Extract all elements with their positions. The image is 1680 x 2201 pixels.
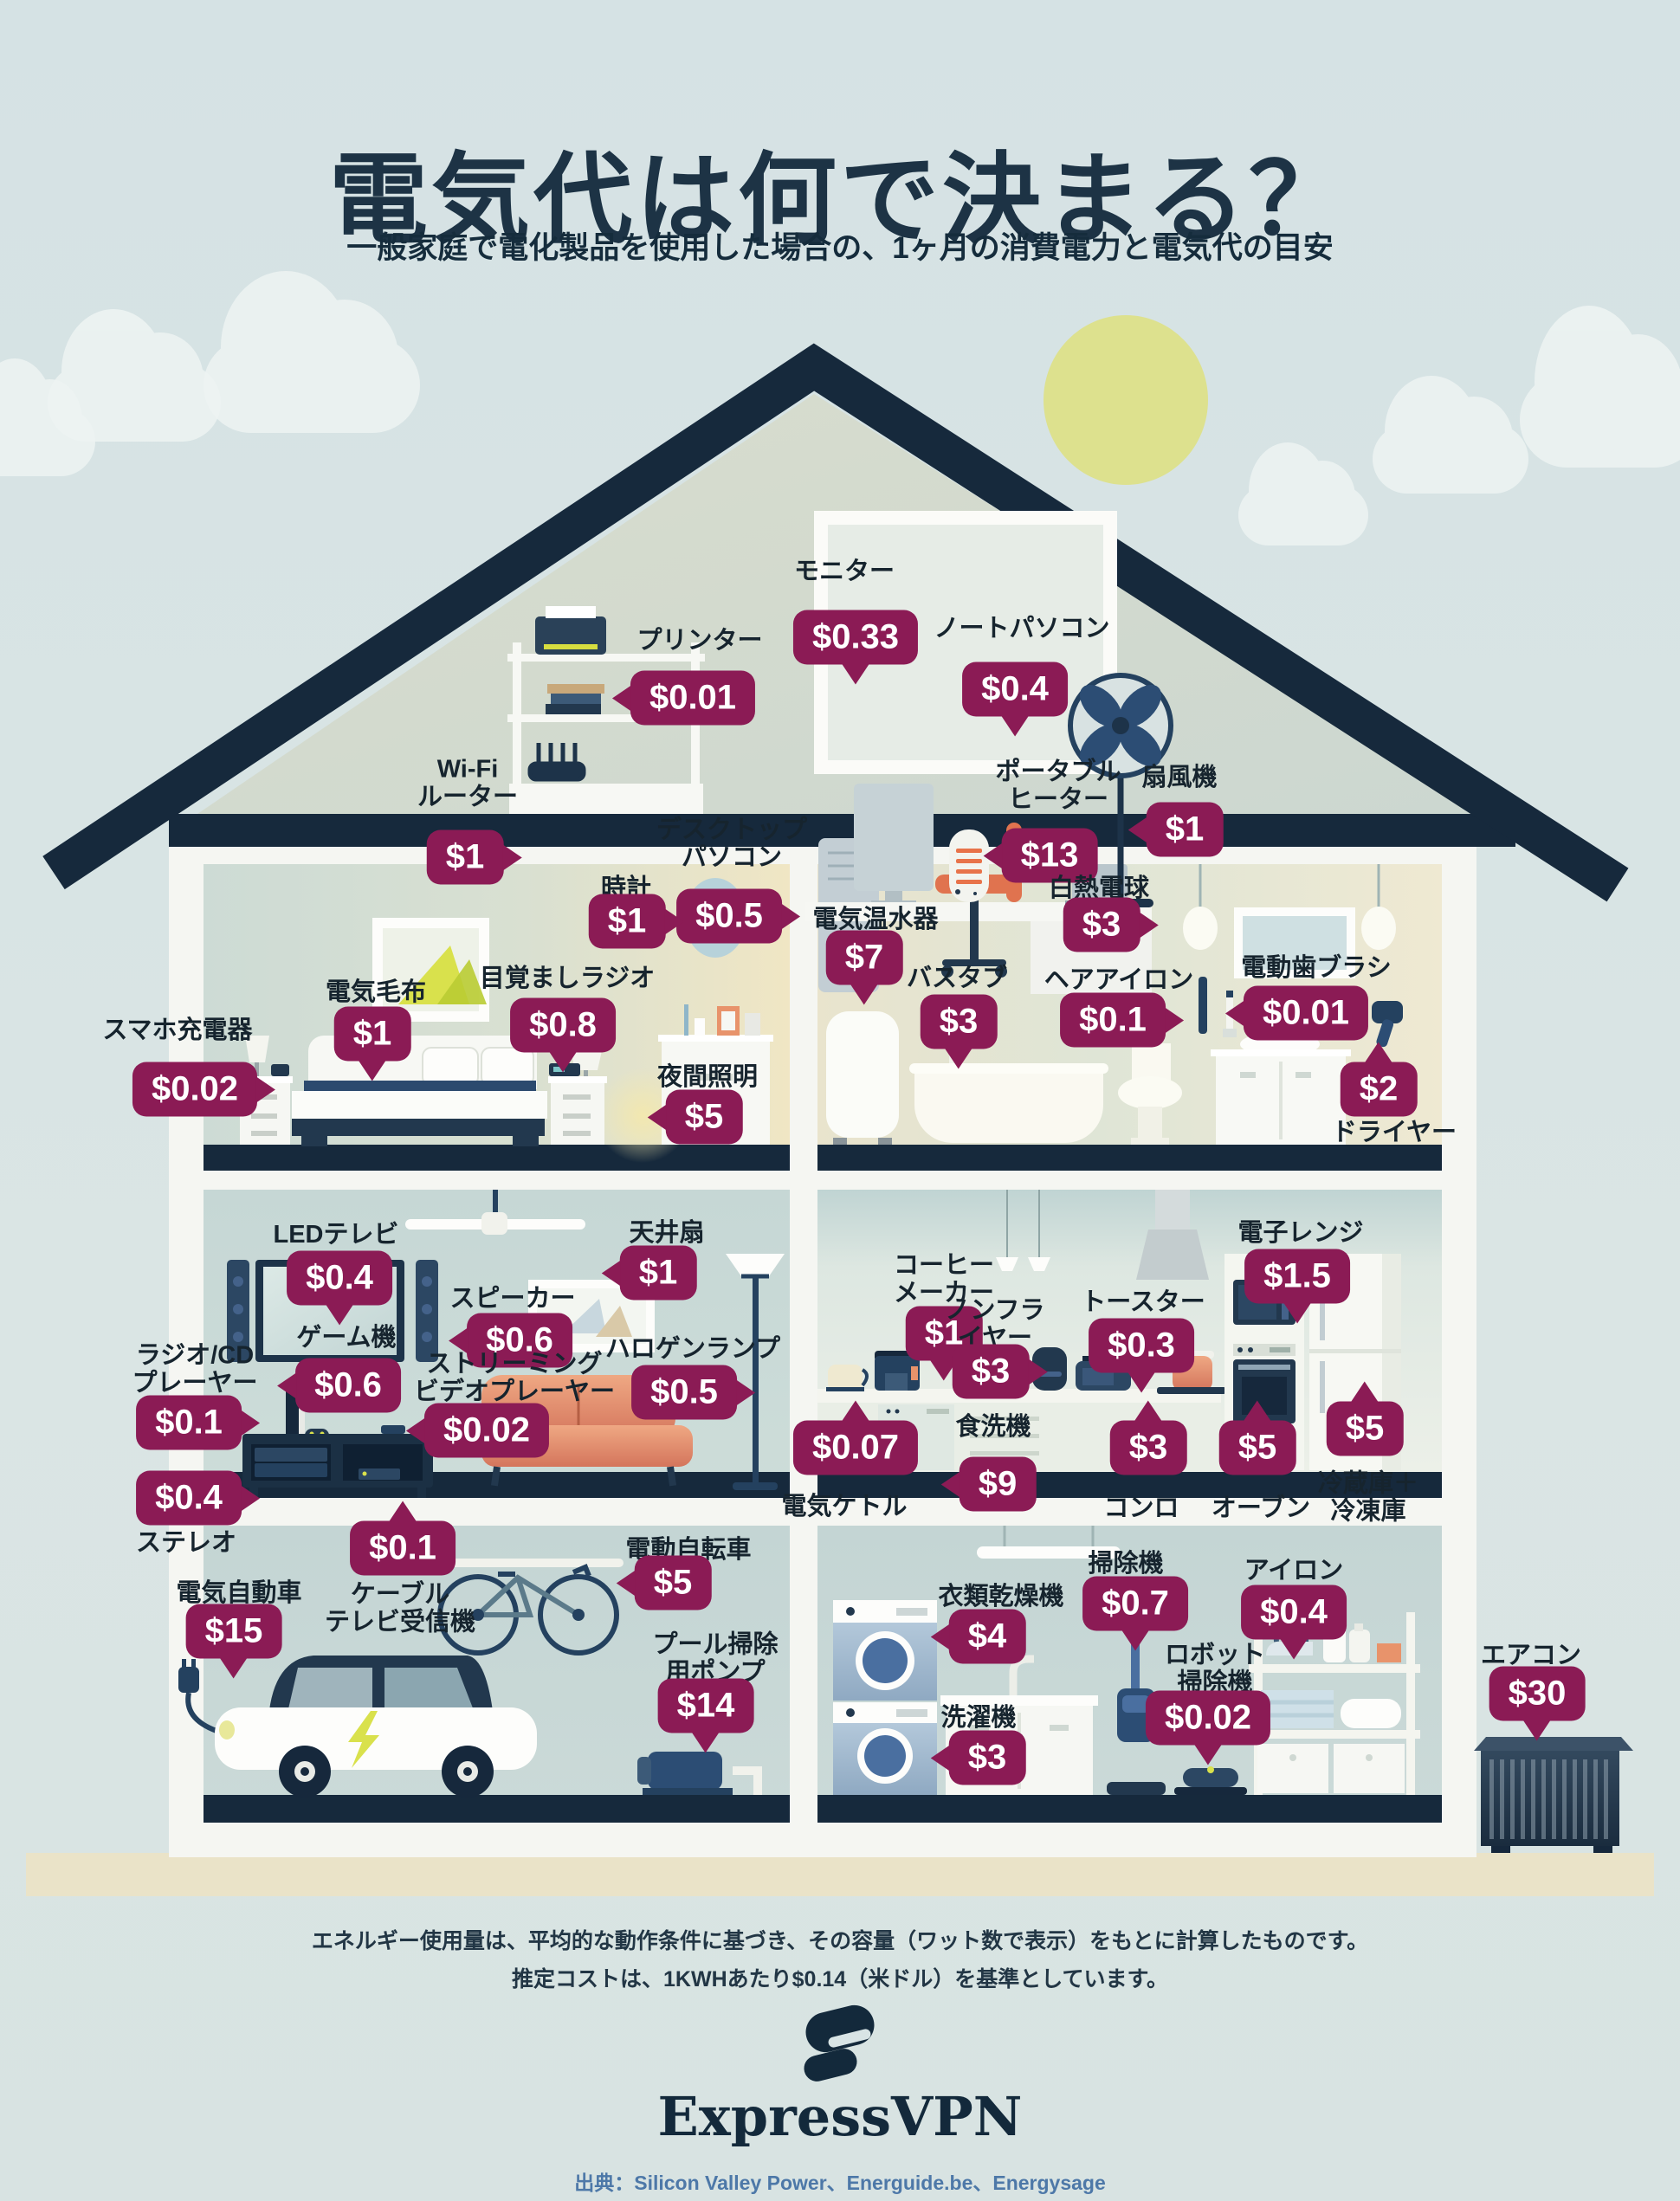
callout-badge-electric-car: $15: [186, 1604, 282, 1659]
callout-badge-electric-bike: $5: [635, 1556, 712, 1610]
callout-badge-electric-kettle: $0.07: [793, 1421, 918, 1475]
callout-label-water-heater: 電気温水器: [812, 906, 938, 933]
callout-badge-radio-cd-player: $0.1: [136, 1396, 242, 1450]
callout-label-phone-charger: スマホ充電器: [102, 1017, 252, 1044]
callout-label-portable-heater: ポータブル ヒーター: [995, 758, 1121, 815]
callout-label-air-conditioner: エアコン: [1481, 1642, 1581, 1669]
callout-badge-water-heater: $7: [826, 931, 903, 985]
callout-label-iron: アイロン: [1244, 1557, 1344, 1585]
callout-label-microwave: 電子レンジ: [1237, 1219, 1363, 1247]
callout-label-hair-dryer: ドライヤー: [1332, 1119, 1457, 1146]
callout-badge-air-conditioner: $30: [1489, 1667, 1586, 1721]
callout-label-ceiling-fan: 天井扇: [629, 1219, 704, 1247]
callout-badge-ceiling-fan: $1: [620, 1246, 697, 1301]
callout-badge-hair-iron: $0.1: [1060, 993, 1166, 1048]
callout-label-hair-iron: ヘアアイロン: [1044, 966, 1194, 994]
callout-badge-cable-tv-box: $0.1: [350, 1521, 456, 1576]
callout-label-cable-tv-box: ケーブル テレビ受信機: [325, 1581, 475, 1637]
callout-badge-bathtub: $3: [921, 995, 998, 1049]
callout-label-printer: プリンター: [636, 627, 762, 655]
callout-badge-electric-toothbrush: $0.01: [1244, 986, 1368, 1041]
callout-badge-oven: $5: [1219, 1421, 1296, 1475]
callout-label-streaming-player: ストリーミング ビデオプレーヤー: [414, 1351, 615, 1407]
callout-label-clothes-dryer: 衣類乾燥機: [938, 1583, 1063, 1610]
callout-badge-pool-pump: $14: [658, 1679, 754, 1733]
callout-label-dishwasher: 食洗機: [955, 1413, 1031, 1441]
callout-badge-toaster: $0.3: [1089, 1319, 1194, 1373]
callout-label-night-light: 夜間照明: [657, 1063, 758, 1091]
callout-label-desktop-pc: デスクトップ パソコン: [656, 816, 807, 873]
callout-badge-alarm-radio: $0.8: [510, 998, 616, 1053]
callout-badge-led-tv: $0.4: [287, 1251, 392, 1306]
callout-label-halogen-lamp: ハロゲンランプ: [605, 1335, 780, 1363]
callout-badge-dishwasher: $9: [960, 1457, 1037, 1512]
callout-label-laptop: ノートパソコン: [934, 615, 1109, 642]
callout-badge-game-console: $0.6: [295, 1359, 401, 1413]
callout-badge-phone-charger: $0.02: [132, 1062, 257, 1117]
callout-badge-laptop: $0.4: [962, 662, 1068, 717]
callout-badge-night-light: $5: [666, 1090, 743, 1145]
callout-label-speakers: スピーカー: [449, 1285, 575, 1313]
callout-label-vacuum: 掃除機: [1088, 1550, 1163, 1578]
callout-label-electric-toothbrush: 電動歯ブラシ: [1241, 954, 1391, 982]
callout-label-electric-fan: 扇風機: [1141, 764, 1217, 791]
callout-badge-clothes-dryer: $4: [949, 1610, 1026, 1664]
callout-label-electric-blanket: 電気毛布: [326, 978, 426, 1006]
callout-badge-vacuum: $0.7: [1082, 1577, 1188, 1631]
callout-badge-air-fryer: $3: [953, 1345, 1030, 1399]
callout-layer: モニター$0.33プリンター$0.01ノートパソコン$0.4Wi-Fi ルーター…: [0, 0, 1680, 2201]
callout-label-electric-car: 電気自動車: [176, 1579, 301, 1607]
callout-badge-halogen-lamp: $0.5: [631, 1365, 737, 1420]
callout-badge-hair-dryer: $2: [1341, 1062, 1418, 1117]
callout-label-led-tv: LEDテレビ: [273, 1221, 398, 1249]
callout-badge-wifi-router: $1: [427, 830, 504, 885]
callout-badge-iron: $0.4: [1241, 1585, 1347, 1640]
callout-label-fridge-freezer: 冷蔵庫＋ 冷凍庫: [1318, 1470, 1418, 1526]
callout-badge-fridge-freezer: $5: [1327, 1402, 1404, 1456]
callout-label-stove: コンロ: [1103, 1494, 1179, 1522]
callout-label-game-console: ゲーム機: [296, 1324, 396, 1352]
callout-label-radio-cd-player: ラジオ/CD プレーヤー: [132, 1342, 257, 1398]
callout-label-robot-vacuum: ロボット 掃除機: [1165, 1642, 1265, 1698]
callout-label-toaster: トースター: [1081, 1288, 1205, 1316]
callout-label-monitor: モニター: [794, 558, 895, 585]
callout-badge-monitor: $0.33: [793, 610, 918, 665]
callout-label-wifi-router: Wi-Fi ルーター: [417, 756, 518, 812]
callout-label-electric-kettle: 電気ケトル: [781, 1493, 907, 1520]
callout-badge-electric-blanket: $1: [334, 1007, 411, 1062]
callout-badge-washing-machine: $3: [949, 1731, 1026, 1785]
infographic-canvas: 電気代は何で決まる？ 一般家庭で電化製品を使用した場合の、1ヶ月の消費電力と電気…: [0, 0, 1680, 2201]
callout-badge-incandescent-bulb: $3: [1063, 898, 1140, 952]
callout-label-alarm-radio: 目覚ましラジオ: [480, 965, 655, 992]
callout-label-bathtub: バスタブ: [907, 965, 1007, 992]
callout-badge-desktop-pc: $0.5: [676, 889, 782, 944]
callout-label-washing-machine: 洗濯機: [940, 1704, 1016, 1732]
callout-badge-stove: $3: [1110, 1421, 1187, 1475]
callout-badge-robot-vacuum: $0.02: [1146, 1691, 1270, 1746]
callout-badge-electric-fan: $1: [1147, 803, 1224, 857]
callout-label-oven: オーブン: [1212, 1494, 1310, 1522]
callout-badge-clock: $1: [589, 894, 666, 949]
callout-badge-streaming-player: $0.02: [424, 1404, 549, 1458]
callout-badge-microwave: $1.5: [1244, 1249, 1350, 1304]
callout-label-stereo: ステレオ: [136, 1529, 236, 1557]
callout-badge-stereo: $0.4: [136, 1471, 242, 1526]
callout-badge-printer: $0.01: [630, 671, 755, 726]
